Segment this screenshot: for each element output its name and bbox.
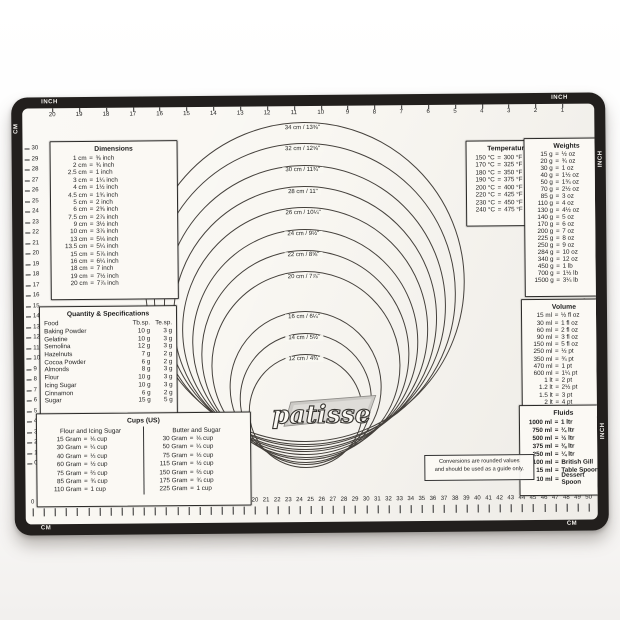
row-value-left: 50 Gram bbox=[147, 445, 187, 452]
ruler-number: 21 bbox=[32, 240, 39, 246]
baking-mat: 2019181716151413121110987654321 01234567… bbox=[11, 92, 609, 535]
ruler-number: 18 bbox=[33, 271, 40, 277]
equals-sign: = bbox=[81, 462, 90, 468]
tablespoon-value: 6 g bbox=[127, 389, 151, 396]
table-row: 110 Gram=1 cup bbox=[41, 486, 140, 495]
ruler-tick bbox=[26, 327, 31, 328]
food-name: Icing Sugar bbox=[45, 381, 127, 389]
row-value-right: 2⅜ inch bbox=[96, 206, 173, 213]
equals-sign: = bbox=[187, 444, 196, 450]
equals-sign: = bbox=[88, 266, 97, 272]
row-value-right: ⅛ cup bbox=[90, 437, 140, 444]
ruler-number: 16 bbox=[156, 111, 163, 117]
ruler-tick bbox=[377, 505, 378, 513]
ruler-tick bbox=[277, 506, 278, 514]
inch-label-top-right: INCH bbox=[551, 95, 568, 101]
equals-sign: = bbox=[88, 274, 97, 280]
ruler-number: 37 bbox=[441, 496, 448, 502]
equals-sign: = bbox=[554, 278, 563, 284]
row-value-left: 85 Gram bbox=[41, 479, 81, 486]
equals-sign: = bbox=[87, 170, 96, 176]
row-value-left: 60 Gram bbox=[41, 462, 81, 469]
ruler-number: 27 bbox=[32, 177, 39, 183]
ruler-tick bbox=[27, 379, 32, 380]
equals-sign: = bbox=[81, 445, 90, 451]
inch-label-right-edge-lower: INCH bbox=[600, 422, 606, 439]
ruler-number: 6 bbox=[426, 109, 429, 115]
ruler-tick bbox=[27, 400, 32, 401]
ruler-tick bbox=[133, 508, 134, 516]
ruler-tick bbox=[99, 508, 100, 516]
ruler-tick bbox=[77, 508, 78, 516]
food-name: Flour bbox=[45, 374, 127, 382]
ruler-number: 23 bbox=[285, 497, 292, 503]
row-value-left: 175 Gram bbox=[147, 478, 187, 485]
ruler-tick bbox=[144, 507, 145, 515]
teaspoon-value: 2 g bbox=[150, 350, 172, 357]
ruler-tick bbox=[555, 504, 556, 512]
teaspoon-value: 3 g bbox=[150, 327, 172, 334]
volume-rows: 15 ml=½ fl oz30 ml=1 fl oz60 ml=2 fl oz9… bbox=[526, 312, 598, 406]
ruler-tick bbox=[489, 504, 490, 512]
row-value-left: 115 Gram bbox=[147, 461, 187, 468]
teaspoon-value: 2 g bbox=[150, 358, 172, 365]
ruler-number: 24 bbox=[296, 497, 303, 503]
row-value-right: ⅜ ltr bbox=[561, 444, 598, 451]
ruler-number: 9 bbox=[346, 110, 349, 116]
row-value-left: 10 cm bbox=[55, 229, 87, 236]
ruler-tick bbox=[25, 159, 30, 160]
equals-sign: = bbox=[87, 251, 96, 257]
ruler-number: 12 bbox=[264, 110, 271, 116]
row-value-left: 15 Gram bbox=[41, 437, 81, 444]
ruler-tick bbox=[533, 504, 534, 512]
equals-sign: = bbox=[188, 486, 197, 492]
row-value-right: ¾ ltr bbox=[561, 427, 598, 434]
ruler-tick bbox=[27, 453, 32, 454]
ruler-tick bbox=[466, 505, 467, 513]
note-box: Conversions are rounded values and shoul… bbox=[424, 454, 534, 481]
row-value-right: 7½ inch bbox=[97, 273, 174, 280]
ruler-number: 2 bbox=[534, 108, 537, 114]
ruler-tick bbox=[25, 211, 30, 212]
equals-sign: = bbox=[495, 192, 504, 198]
teaspoon-value: 5 g bbox=[151, 396, 173, 403]
row-value-left: 6 cm bbox=[55, 207, 87, 214]
ruler-tick bbox=[25, 180, 30, 181]
ruler-tick bbox=[27, 432, 32, 433]
ruler-number: 34 bbox=[407, 496, 414, 502]
ruler-tick bbox=[25, 169, 30, 170]
ruler-tick bbox=[344, 506, 345, 514]
equals-sign: = bbox=[87, 178, 96, 184]
row-value-left: 13.5 cm bbox=[55, 244, 87, 251]
ruler-tick bbox=[333, 506, 334, 514]
ruler-number: 8 bbox=[34, 376, 37, 382]
circle-diameter-label: 34 cm / 13⅜" bbox=[282, 124, 323, 130]
row-value-right: ¼ cup bbox=[90, 445, 140, 452]
ruler-tick bbox=[544, 504, 545, 512]
ruler-number: 21 bbox=[263, 497, 270, 503]
equals-sign: = bbox=[81, 479, 90, 485]
ruler-tick bbox=[500, 504, 501, 512]
equals-sign: = bbox=[495, 162, 504, 168]
equals-sign: = bbox=[552, 476, 561, 482]
ruler-tick bbox=[311, 506, 312, 514]
ruler-number: 31 bbox=[374, 496, 381, 502]
row-value-right: British Gill bbox=[561, 460, 598, 467]
cups-butter-column: Butter and Sugar 30 Gram=⅛ cup50 Gram=¼ … bbox=[147, 426, 247, 495]
row-value-left: 170 °C bbox=[471, 162, 495, 169]
ruler-number: 17 bbox=[33, 282, 40, 288]
row-value-left: 18 cm bbox=[56, 266, 88, 273]
dimensions-rows: 1 cm=⅜ inch2 cm=¾ inch2.5 cm=1 inch3 cm=… bbox=[55, 154, 174, 288]
equals-sign: = bbox=[82, 487, 91, 493]
row-value-right: ⅓ cup bbox=[90, 453, 140, 460]
row-value-left: 1.2 lt bbox=[527, 385, 553, 392]
equals-sign: = bbox=[88, 259, 97, 265]
circle-diameter-label: 14 cm / 5½" bbox=[285, 335, 323, 341]
quantity-specifications-table: Quantity & Specifications Food Tb.sp. Te… bbox=[39, 305, 178, 417]
row-value-right: ½ ltr bbox=[561, 436, 598, 443]
row-value-left: 750 ml bbox=[524, 428, 552, 435]
ruler-tick bbox=[27, 390, 32, 391]
row-value-right: ¼ cup bbox=[196, 444, 246, 451]
teaspoon-value: 3 g bbox=[150, 335, 172, 342]
ruler-number: 14 bbox=[210, 111, 217, 117]
ruler-tick bbox=[455, 505, 456, 513]
row-value-right: 1 inch bbox=[96, 170, 173, 177]
ruler-tick bbox=[222, 507, 223, 515]
ruler-number: 8 bbox=[373, 109, 376, 115]
ruler-tick bbox=[26, 358, 31, 359]
row-value-right: ⅓ cup bbox=[196, 452, 246, 459]
row-value-left: 1000 ml bbox=[524, 420, 552, 427]
row-value-left: 190 °C bbox=[471, 177, 495, 184]
equals-sign: = bbox=[87, 207, 96, 213]
ruler-tick bbox=[199, 507, 200, 515]
ruler-number: 20 bbox=[49, 112, 56, 118]
weights-rows: 15 g=½ oz20 g=¾ oz30 g=1 oz40 g=1½ oz50 … bbox=[529, 151, 598, 285]
ruler-number: 9 bbox=[33, 366, 36, 372]
equals-sign: = bbox=[87, 237, 96, 243]
ruler-number: 33 bbox=[396, 496, 403, 502]
equals-sign: = bbox=[87, 244, 96, 250]
ruler-tick bbox=[355, 506, 356, 514]
ruler-number: 22 bbox=[32, 229, 39, 235]
table-row: Sugar15 g5 g bbox=[45, 396, 173, 405]
ruler-number: 35 bbox=[418, 496, 425, 502]
ruler-tick bbox=[433, 505, 434, 513]
ruler-number: 25 bbox=[32, 198, 39, 204]
row-value-left: 250 ml bbox=[526, 349, 552, 356]
ruler-tick bbox=[25, 201, 30, 202]
ruler-tick bbox=[366, 506, 367, 514]
table-row: 225 Gram=1 cup bbox=[147, 485, 246, 494]
fluids-title: Fluids bbox=[524, 408, 598, 419]
ruler-tick bbox=[27, 442, 32, 443]
ruler-tick bbox=[188, 507, 189, 515]
tablespoon-value: 7 g bbox=[126, 350, 150, 357]
row-value-left: 110 Gram bbox=[42, 487, 82, 494]
teaspoon-value: 3 g bbox=[151, 373, 173, 380]
ruler-tick bbox=[26, 274, 31, 275]
row-value-right: 1 cup bbox=[197, 486, 247, 493]
ruler-tick bbox=[66, 508, 67, 516]
ruler-tick bbox=[25, 148, 30, 149]
ruler-number: 41 bbox=[485, 495, 492, 501]
ruler-tick bbox=[122, 508, 123, 516]
ruler-tick bbox=[44, 508, 45, 516]
equals-sign: = bbox=[552, 313, 561, 319]
ruler-tick bbox=[266, 506, 267, 514]
row-value-left: 30 Gram bbox=[147, 436, 187, 443]
row-value-right: ½ pt bbox=[561, 349, 597, 356]
row-value-left: 225 Gram bbox=[148, 486, 188, 493]
equals-sign: = bbox=[495, 207, 504, 213]
ruler-number: 20 bbox=[32, 250, 39, 256]
circle-diameter-label: 22 cm / 8⅝" bbox=[285, 252, 323, 258]
row-value-right: ⅜ inch bbox=[96, 155, 173, 162]
ruler-tick bbox=[25, 253, 30, 254]
brand-logo: patisse bbox=[268, 392, 388, 433]
tablespoon-value: 8 g bbox=[126, 366, 150, 373]
ruler-tick bbox=[25, 243, 30, 244]
circle-diameter-label: 32 cm / 12⅝" bbox=[282, 146, 323, 152]
row-value-right: 1½ inch bbox=[96, 184, 173, 191]
ruler-number: 7 bbox=[34, 387, 37, 393]
ruler-tick bbox=[27, 463, 32, 464]
circle-diameter-label: 28 cm / 11" bbox=[285, 188, 321, 194]
ruler-tick bbox=[566, 504, 567, 512]
tablespoon-value: 10 g bbox=[126, 335, 150, 342]
ruler-number: 29 bbox=[32, 156, 39, 162]
row-value-right: 7⅞ inch bbox=[97, 280, 174, 287]
equals-sign: = bbox=[552, 420, 561, 426]
row-value-right: 3½ inch bbox=[96, 221, 173, 228]
equals-sign: = bbox=[81, 437, 90, 443]
ruler-number: 17 bbox=[129, 112, 136, 118]
ruler-number: 36 bbox=[430, 496, 437, 502]
row-value-left: 40 Gram bbox=[41, 454, 81, 461]
fluids-table: Fluids 1000 ml=1 ltr750 ml=¾ ltr500 ml=½… bbox=[519, 404, 598, 496]
quantity-rows: Baking Powder10 g3 gGelatine10 g3 gSemol… bbox=[44, 327, 173, 405]
ruler-number: 26 bbox=[318, 497, 325, 503]
ruler-number: 23 bbox=[32, 219, 39, 225]
weights-table: Weights 15 g=½ oz20 g=¾ oz30 g=1 oz40 g=… bbox=[523, 137, 597, 297]
table-row: 10 ml=Dessert Spoon bbox=[524, 475, 597, 484]
ruler-tick bbox=[26, 295, 31, 296]
row-value-right: 5¼ inch bbox=[96, 243, 173, 250]
equals-sign: = bbox=[87, 163, 96, 169]
row-value-right: 5⅛ inch bbox=[96, 236, 173, 243]
ruler-tick bbox=[27, 411, 32, 412]
inch-label-right-edge: INCH bbox=[598, 150, 604, 167]
ruler-number: 30 bbox=[363, 496, 370, 502]
ruler-number: 15 bbox=[183, 111, 190, 117]
row-value-left: 15 ml bbox=[526, 313, 552, 320]
ruler-number: 32 bbox=[385, 496, 392, 502]
row-value-right: 3 pt bbox=[562, 392, 598, 399]
tablespoon-value: 10 g bbox=[126, 327, 150, 334]
ruler-tick bbox=[27, 421, 32, 422]
ruler-tick bbox=[55, 508, 56, 516]
row-value-right: 2 inch bbox=[96, 199, 173, 206]
ruler-tick bbox=[26, 285, 31, 286]
ruler-tick bbox=[288, 506, 289, 514]
cups-flour-rows: 15 Gram=⅛ cup30 Gram=¼ cup40 Gram=⅓ cup6… bbox=[41, 435, 141, 495]
row-value-left: 240 °C bbox=[471, 207, 495, 214]
ruler-tick bbox=[26, 316, 31, 317]
row-value-right: 5⅞ inch bbox=[96, 251, 173, 258]
row-value-right: 1 cup bbox=[91, 487, 141, 494]
row-value-right: ½ fl oz bbox=[561, 313, 598, 320]
ruler-tick bbox=[389, 505, 390, 513]
row-value-left: 150 Gram bbox=[147, 470, 187, 477]
food-name: Semolina bbox=[44, 343, 126, 351]
equals-sign: = bbox=[87, 222, 96, 228]
ruler-number: 1 bbox=[561, 108, 564, 114]
row-value-left: 30 Gram bbox=[41, 445, 81, 452]
row-value-right: ¾ cup bbox=[196, 478, 246, 485]
ruler-tick bbox=[233, 507, 234, 515]
equals-sign: = bbox=[87, 192, 96, 198]
row-value-right: ½ cup bbox=[90, 462, 140, 469]
row-value-right: 6¼ inch bbox=[97, 258, 174, 265]
ruler-number: 25 bbox=[307, 497, 314, 503]
row-value-left: 75 Gram bbox=[147, 453, 187, 460]
row-value-right: ¾ inch bbox=[96, 162, 173, 169]
mat-surface: 2019181716151413121110987654321 01234567… bbox=[22, 104, 598, 525]
ruler-tick bbox=[25, 222, 30, 223]
tablespoon-value: 15 g bbox=[127, 397, 151, 404]
ruler-number: 29 bbox=[352, 497, 359, 503]
row-value-right: ¾ cup bbox=[90, 478, 140, 485]
logo-text: patisse bbox=[272, 399, 371, 429]
equals-sign: = bbox=[552, 452, 561, 458]
row-value-right: 2½ pt bbox=[562, 385, 598, 392]
food-name: Sugar bbox=[45, 397, 127, 405]
tablespoon-value: 12 g bbox=[126, 343, 150, 350]
row-value-left: 2.5 cm bbox=[55, 170, 87, 177]
equals-sign: = bbox=[553, 385, 562, 391]
ruler-number: 43 bbox=[507, 495, 514, 501]
ruler-tick bbox=[322, 506, 323, 514]
teaspoon-value: 2 g bbox=[151, 389, 173, 396]
row-value-right: 7 inch bbox=[97, 266, 174, 273]
equals-sign: = bbox=[552, 349, 561, 355]
food-name: Gelatine bbox=[44, 335, 126, 343]
circle-diameter-label: 20 cm / 7⅞" bbox=[285, 274, 323, 280]
ruler-tick bbox=[411, 505, 412, 513]
row-value-right: ⅛ cup bbox=[196, 436, 246, 443]
ruler-tick bbox=[25, 190, 30, 191]
row-value-left: 4 cm bbox=[55, 185, 87, 192]
row-value-left: 220 °C bbox=[471, 192, 495, 199]
ruler-tick bbox=[26, 348, 31, 349]
cups-flour-column: Flour and Icing Sugar 15 Gram=⅛ cup30 Gr… bbox=[41, 426, 141, 495]
equals-sign: = bbox=[552, 460, 561, 466]
tablespoon-value: 6 g bbox=[126, 358, 150, 365]
tablespoon-value: 10 g bbox=[127, 381, 151, 388]
ruler-tick bbox=[422, 505, 423, 513]
ruler-number: 27 bbox=[329, 497, 336, 503]
table-row: 20 cm=7⅞ inch bbox=[56, 280, 174, 288]
ruler-number: 10 bbox=[317, 110, 324, 116]
equals-sign: = bbox=[88, 281, 97, 287]
teaspoon-value: 3 g bbox=[150, 343, 172, 350]
ruler-tick bbox=[522, 504, 523, 512]
ruler-number: 3 bbox=[507, 108, 510, 114]
ruler-tick bbox=[211, 507, 212, 515]
row-value-left: 75 Gram bbox=[41, 471, 81, 478]
ruler-tick bbox=[26, 264, 31, 265]
ruler-tick bbox=[177, 507, 178, 515]
equals-sign: = bbox=[552, 436, 561, 442]
cm-label-left-edge: CM bbox=[13, 124, 19, 134]
ruler-number: 7 bbox=[400, 109, 403, 115]
ruler-tick bbox=[26, 306, 31, 307]
equals-sign: = bbox=[187, 470, 196, 476]
circle-diameter-label: 30 cm / 11¾" bbox=[282, 167, 323, 173]
ruler-number: 18 bbox=[103, 112, 110, 118]
cups-table: Cups (US) Flour and Icing Sugar 15 Gram=… bbox=[36, 412, 252, 508]
equals-sign: = bbox=[495, 155, 504, 161]
teaspoon-value: 3 g bbox=[151, 381, 173, 388]
ruler-number: 38 bbox=[452, 496, 459, 502]
cups-butter-rows: 30 Gram=⅛ cup50 Gram=¼ cup75 Gram=⅓ cup1… bbox=[147, 435, 247, 495]
note-line-2: and should be used as a guide only. bbox=[425, 465, 533, 474]
ruler-number: 24 bbox=[32, 208, 39, 214]
row-value-left: 500 ml bbox=[524, 436, 552, 443]
cm-label-bottom-left: CM bbox=[41, 525, 51, 531]
equals-sign: = bbox=[495, 200, 504, 206]
table-row: 1500 g=3¼ lb bbox=[530, 277, 598, 285]
ruler-number: 30 bbox=[32, 145, 39, 151]
ruler-number: 19 bbox=[33, 261, 40, 267]
row-value-left: 1500 g bbox=[530, 278, 554, 285]
ruler-tick bbox=[578, 504, 579, 512]
equals-sign: = bbox=[187, 436, 196, 442]
equals-sign: = bbox=[553, 392, 562, 398]
equals-sign: = bbox=[552, 468, 561, 474]
circle-diameter-label: 16 cm / 6¼" bbox=[285, 314, 323, 320]
ruler-number: 11 bbox=[291, 110, 297, 116]
food-name: Cinnamon bbox=[45, 389, 127, 397]
ruler-tick bbox=[255, 506, 256, 514]
ruler-tick bbox=[26, 337, 31, 338]
cups-divider bbox=[143, 426, 145, 494]
ruler-tick bbox=[155, 507, 156, 515]
row-value-right: ¼ ltr bbox=[561, 452, 598, 459]
food-name: Hazelnuts bbox=[44, 351, 126, 359]
ruler-tick bbox=[511, 504, 512, 512]
row-value-right: ⅔ cup bbox=[196, 469, 246, 476]
equals-sign: = bbox=[87, 215, 96, 221]
ruler-tick bbox=[33, 508, 34, 516]
inch-label-top-left: INCH bbox=[41, 99, 58, 105]
ruler-tick bbox=[25, 232, 30, 233]
ruler-tick bbox=[477, 505, 478, 513]
ruler-number: 4 bbox=[480, 108, 483, 114]
equals-sign: = bbox=[81, 471, 90, 477]
row-value-left: 20 cm bbox=[56, 281, 88, 288]
ruler-tick bbox=[111, 508, 112, 516]
circle-diameter-label: 12 cm / 4¾" bbox=[285, 356, 323, 362]
equals-sign: = bbox=[81, 454, 90, 460]
ruler-tick bbox=[400, 505, 401, 513]
ruler-tick bbox=[166, 507, 167, 515]
